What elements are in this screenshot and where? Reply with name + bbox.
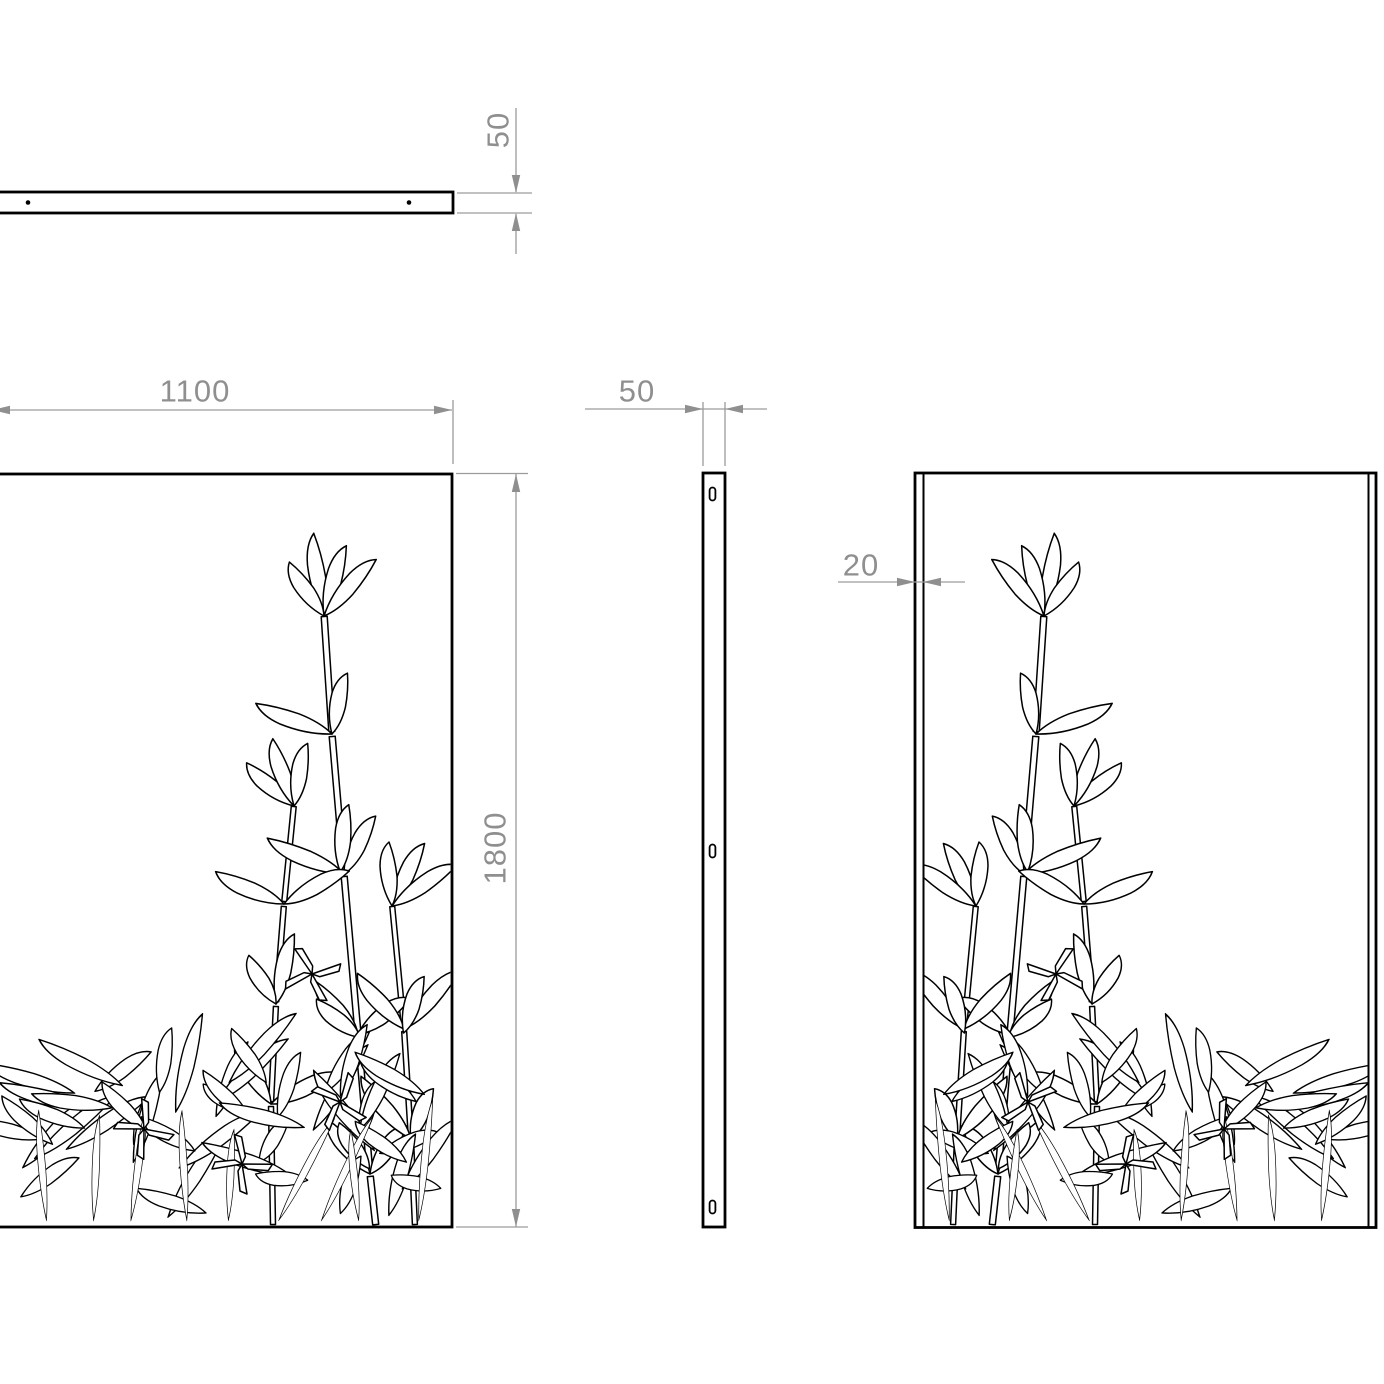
mounting-slot: [710, 488, 716, 501]
drawing-canvas: 50 1100 50 20 1800: [0, 0, 1384, 1384]
arrowhead: [512, 1209, 520, 1227]
mounting-slot: [710, 1201, 716, 1214]
arrowhead: [725, 405, 743, 413]
dimension-line: [0, 400, 453, 464]
dim-label-flange-depth: 20: [843, 550, 879, 581]
mounting-slot: [710, 845, 716, 858]
dim-label-side-thickness: 50: [619, 376, 655, 407]
back-view: [902, 473, 1384, 1228]
arrowhead: [512, 474, 520, 492]
side-view: [703, 473, 725, 1227]
mounting-hole: [407, 200, 412, 205]
arrowhead: [897, 578, 915, 586]
dim-panel-width: [0, 400, 453, 464]
dim-side-thickness: [585, 402, 767, 466]
dim-label-panel-height: 1800: [480, 812, 511, 885]
arrowhead: [512, 175, 520, 193]
mounting-hole: [26, 200, 31, 205]
top-view-outline: [0, 192, 453, 213]
dim-label-panel-width: 1100: [160, 376, 231, 407]
arrowhead: [512, 213, 520, 231]
top-view: [0, 192, 453, 213]
technical-drawing: [0, 0, 1384, 1384]
arrowhead: [685, 405, 703, 413]
dim-label-top-thickness: 50: [483, 112, 514, 148]
front-view: [0, 474, 466, 1227]
arrowhead: [434, 406, 452, 414]
arrowhead: [0, 406, 10, 414]
